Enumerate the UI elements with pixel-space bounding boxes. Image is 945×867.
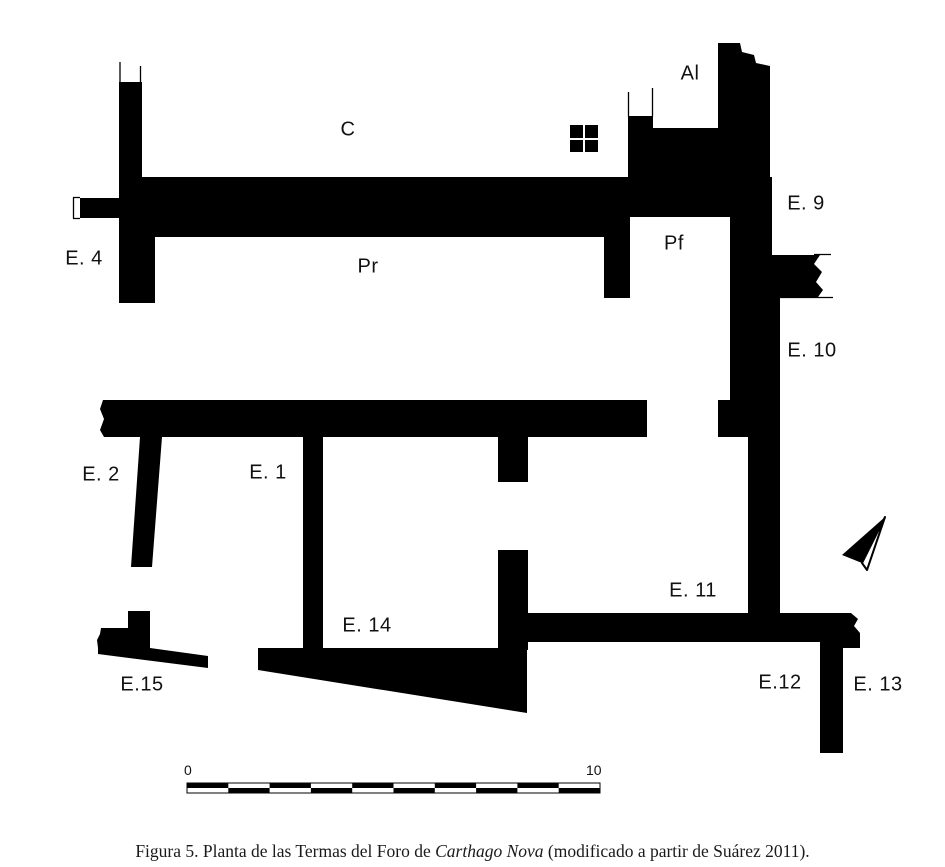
- room-label-c: C: [341, 119, 356, 142]
- caption-prefix: Figura 5. Planta de las Termas del Foro …: [135, 841, 435, 861]
- room-label-e9: E. 9: [787, 193, 825, 216]
- wall-e2: [131, 437, 162, 567]
- window-grid-icon: [570, 125, 598, 152]
- floor-plan-drawing: [0, 0, 945, 867]
- wall-e13: [820, 643, 843, 753]
- scale-end-label: 10: [586, 762, 602, 778]
- room-label-al: Al: [681, 63, 700, 86]
- room-label-e14: E. 14: [342, 615, 391, 638]
- north-arrow-icon: [842, 517, 885, 570]
- scale-start-label: 0: [184, 762, 192, 778]
- room-label-e11: E. 11: [669, 580, 717, 603]
- wall-east-step: [718, 400, 780, 437]
- tick-upper-left-wall: [120, 62, 141, 82]
- wall-upper-left: [119, 82, 142, 178]
- room-label-e1: E. 1: [249, 462, 287, 485]
- wall-e14-stub: [498, 437, 528, 482]
- floor-plan-figure: C Al E. 9 E. 4 Pr Pf E. 10 E. 2 E. 1 E. …: [0, 0, 945, 867]
- wall-lower-band: [100, 400, 647, 437]
- wall-west-stub: [80, 198, 120, 218]
- wall-e11-south: [527, 613, 860, 648]
- tick-west-stub-bracket: [73, 198, 80, 219]
- wall-ne-mass: [718, 43, 770, 178]
- tick-al-wall: [629, 88, 653, 117]
- wall-east-upper: [730, 177, 772, 260]
- wall-e14-wedge: [258, 648, 527, 713]
- room-label-e13: E. 13: [853, 674, 902, 697]
- scale-bar: [187, 783, 600, 793]
- room-label-e4: E. 4: [65, 248, 103, 271]
- wall-e15-bar: [98, 648, 208, 668]
- wall-east-lower: [748, 437, 780, 615]
- wall-al: [628, 116, 653, 177]
- room-label-e10: E. 10: [787, 340, 836, 363]
- figure-caption: Figura 5. Planta de las Termas del Foro …: [0, 841, 945, 862]
- wall-main-band: [119, 177, 770, 217]
- room-label-pf: Pf: [664, 233, 684, 256]
- room-label-pr: Pr: [358, 256, 379, 279]
- caption-suffix: (modificado a partir de Suárez 2011).: [544, 841, 810, 861]
- room-label-e2: E. 2: [82, 464, 120, 487]
- wall-left-lower: [119, 236, 155, 303]
- wall-e15-left: [97, 628, 128, 648]
- wall-east-mid: [730, 257, 780, 400]
- wall-e1-east: [303, 437, 323, 652]
- room-label-e15: E.15: [120, 674, 163, 697]
- wall-main-band-strip: [119, 217, 630, 237]
- wall-e15-stub: [128, 611, 150, 648]
- caption-italic-title: Carthago Nova: [435, 841, 543, 861]
- room-label-e12: E.12: [758, 672, 801, 695]
- wall-pr-east: [604, 236, 630, 298]
- wall-al-step: [653, 128, 728, 177]
- wall-e14-east: [498, 550, 528, 650]
